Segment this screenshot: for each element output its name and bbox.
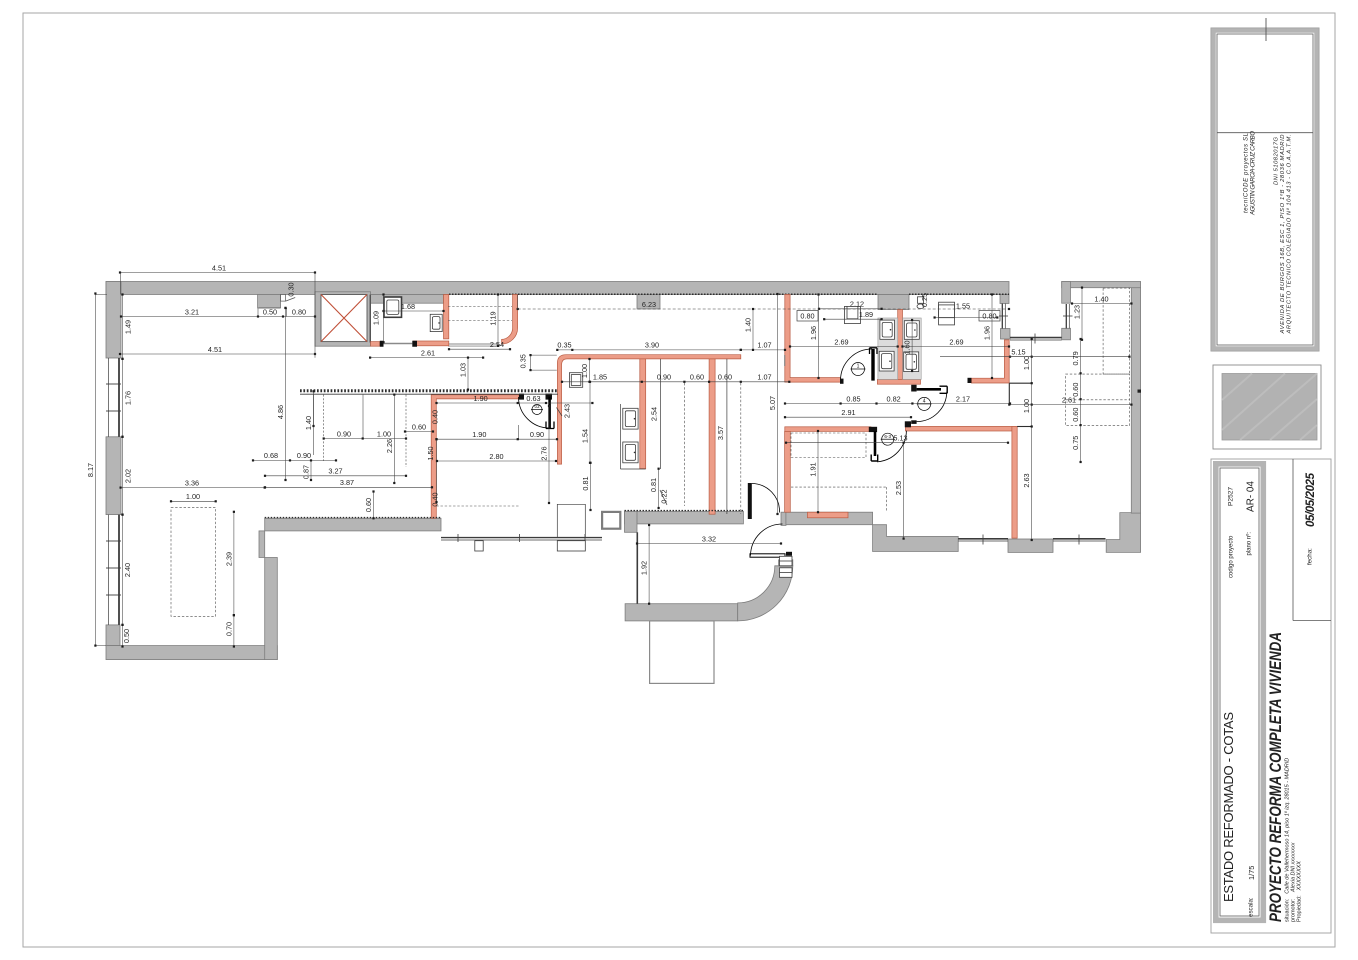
svg-text:3.36: 3.36 (185, 478, 199, 487)
svg-text:3.87: 3.87 (340, 478, 354, 487)
svg-text:2.80: 2.80 (489, 452, 503, 461)
svg-text:codigo proyecto: codigo proyecto (1229, 535, 1235, 578)
svg-text:0.63: 0.63 (526, 394, 540, 403)
svg-text:1.90: 1.90 (472, 430, 486, 439)
svg-text:0.81: 0.81 (649, 478, 658, 492)
svg-text:2.54: 2.54 (490, 340, 504, 349)
svg-text:1.96: 1.96 (983, 326, 992, 340)
svg-text:AGUSTIN GARCIA-CRUZ CARBO: AGUSTIN GARCIA-CRUZ CARBO (1251, 131, 1257, 216)
svg-text:2.17: 2.17 (956, 394, 970, 403)
svg-text:0.90: 0.90 (657, 373, 671, 382)
svg-text:2.39: 2.39 (224, 552, 233, 566)
svg-text:1.55: 1.55 (956, 301, 970, 310)
svg-text:0.80: 0.80 (292, 307, 306, 316)
svg-text:0.60: 0.60 (364, 498, 373, 512)
svg-text:fecha:: fecha: (1307, 548, 1314, 565)
svg-text:3.21: 3.21 (185, 307, 199, 316)
svg-text:0.25: 0.25 (920, 293, 929, 307)
svg-text:1: 1 (857, 364, 860, 370)
svg-text:1.00: 1.00 (1022, 399, 1031, 413)
svg-text:ARQUITECTO TECNICO COLEGIADO N: ARQUITECTO TECNICO COLEGIADO Nº 104.413 … (1286, 135, 1293, 335)
svg-text:1.40: 1.40 (744, 318, 753, 332)
svg-text:1.96: 1.96 (809, 326, 818, 340)
svg-text:05/05/2025: 05/05/2025 (1305, 472, 1317, 527)
svg-text:0.80: 0.80 (800, 311, 814, 320)
svg-text:1.07: 1.07 (757, 341, 771, 350)
svg-text:1.00: 1.00 (580, 364, 589, 378)
svg-text:2.76: 2.76 (540, 446, 549, 460)
svg-text:2.43: 2.43 (563, 404, 572, 418)
svg-text:1.89: 1.89 (859, 310, 873, 319)
svg-text:1.85: 1.85 (593, 373, 607, 382)
svg-text:2.40: 2.40 (123, 563, 132, 577)
svg-text:4.86: 4.86 (276, 405, 285, 419)
svg-text:2.91: 2.91 (841, 408, 855, 417)
svg-text:1.00: 1.00 (377, 429, 391, 438)
svg-text:3.57: 3.57 (716, 426, 725, 440)
svg-text:2.53: 2.53 (894, 481, 903, 495)
svg-text:5.07: 5.07 (768, 396, 777, 410)
svg-text:0.81: 0.81 (581, 476, 590, 490)
svg-text:3.27: 3.27 (328, 467, 342, 476)
svg-text:1.90: 1.90 (473, 394, 487, 403)
svg-text:1.40: 1.40 (304, 416, 313, 430)
svg-text:0.60: 0.60 (412, 422, 426, 431)
svg-text:4.51: 4.51 (212, 263, 226, 272)
svg-text:2.26: 2.26 (385, 439, 394, 453)
svg-text:0.35: 0.35 (557, 341, 571, 350)
svg-text:0.40: 0.40 (431, 492, 440, 506)
svg-text:1.07: 1.07 (757, 373, 771, 382)
svg-text:2.12: 2.12 (850, 300, 864, 309)
svg-text:Propiedad:XXXXXXXX: Propiedad:XXXXXXXX (1297, 861, 1303, 922)
svg-text:0.30: 0.30 (287, 282, 296, 296)
svg-text:1/75: 1/75 (1247, 866, 1256, 880)
svg-text:3.90: 3.90 (645, 341, 659, 350)
svg-text:DNI 51082017G: DNI 51082017G (1274, 137, 1280, 185)
svg-text:6.23: 6.23 (642, 300, 656, 309)
svg-text:0.50: 0.50 (263, 307, 277, 316)
svg-text:0.90: 0.90 (530, 430, 544, 439)
svg-text:0.60: 0.60 (1071, 383, 1080, 397)
svg-text:P2527: P2527 (1228, 487, 1235, 506)
svg-text:0.87: 0.87 (302, 465, 311, 479)
svg-text:0.85: 0.85 (846, 394, 860, 403)
svg-text:0.60: 0.60 (1071, 408, 1080, 422)
svg-text:3.32: 3.32 (702, 534, 716, 543)
svg-text:2.02: 2.02 (124, 469, 133, 483)
svg-text:1.76: 1.76 (124, 391, 133, 405)
svg-text:ESTADO REFORMADO - COTAS: ESTADO REFORMADO - COTAS (1221, 712, 1236, 902)
svg-text:5.13: 5.13 (893, 434, 907, 443)
svg-text:2.69: 2.69 (834, 337, 848, 346)
svg-text:plano nº:: plano nº: (1246, 532, 1253, 556)
svg-text:1.54: 1.54 (581, 429, 590, 443)
svg-text:1.00: 1.00 (186, 492, 200, 501)
svg-text:0.60: 0.60 (718, 373, 732, 382)
svg-text:1.40: 1.40 (1094, 294, 1108, 303)
svg-text:0.90: 0.90 (297, 451, 311, 460)
svg-text:1.68: 1.68 (401, 302, 415, 311)
svg-text:1.49: 1.49 (124, 320, 133, 334)
svg-text:0.60: 0.60 (690, 373, 704, 382)
svg-text:1.50: 1.50 (426, 446, 435, 460)
svg-text:1.23: 1.23 (1073, 305, 1082, 319)
svg-text:8.17: 8.17 (86, 463, 95, 477)
svg-text:0.35: 0.35 (518, 354, 527, 368)
svg-text:AVENIDA DE BURGOS 16B, ESC 1,: AVENIDA DE BURGOS 16B, ESC 1, PISO 1ºB -… (1279, 135, 1286, 335)
svg-text:2.61: 2.61 (421, 348, 435, 357)
svg-text:0.75: 0.75 (1071, 436, 1080, 450)
svg-text:0.82: 0.82 (886, 394, 900, 403)
svg-text:1.19: 1.19 (489, 311, 498, 325)
svg-text:0.90: 0.90 (337, 429, 351, 438)
svg-text:1.09: 1.09 (372, 311, 381, 325)
svg-text:0.50: 0.50 (122, 629, 131, 643)
svg-text:2.63: 2.63 (1022, 473, 1031, 487)
svg-text:0.40: 0.40 (431, 410, 440, 424)
svg-text:escala:: escala: (1248, 897, 1255, 917)
svg-text:1.03: 1.03 (459, 363, 468, 377)
svg-text:1.00: 1.00 (1022, 356, 1031, 370)
svg-text:0.70: 0.70 (224, 622, 233, 636)
svg-text:2.69: 2.69 (949, 337, 963, 346)
svg-text:2.54: 2.54 (650, 407, 659, 421)
svg-text:0.68: 0.68 (264, 451, 278, 460)
svg-text:1.91: 1.91 (809, 462, 818, 476)
svg-text:5.15: 5.15 (1011, 348, 1025, 357)
svg-text:AR- 04: AR- 04 (1246, 481, 1257, 512)
svg-text:tecniCODE proyectos SL: tecniCODE proyectos SL (1244, 133, 1250, 213)
svg-text:PROYECTO REFORMA COMPLETA VIVI: PROYECTO REFORMA COMPLETA VIVIENDA (1266, 632, 1285, 922)
svg-text:4.51: 4.51 (208, 345, 222, 354)
svg-text:0.79: 0.79 (1071, 351, 1080, 365)
svg-text:6-3: 6-3 (884, 434, 891, 439)
svg-text:1.60: 1.60 (903, 340, 912, 354)
svg-text:03: 03 (535, 404, 540, 409)
svg-text:1.92: 1.92 (640, 561, 649, 575)
svg-text:0.80: 0.80 (982, 311, 996, 320)
